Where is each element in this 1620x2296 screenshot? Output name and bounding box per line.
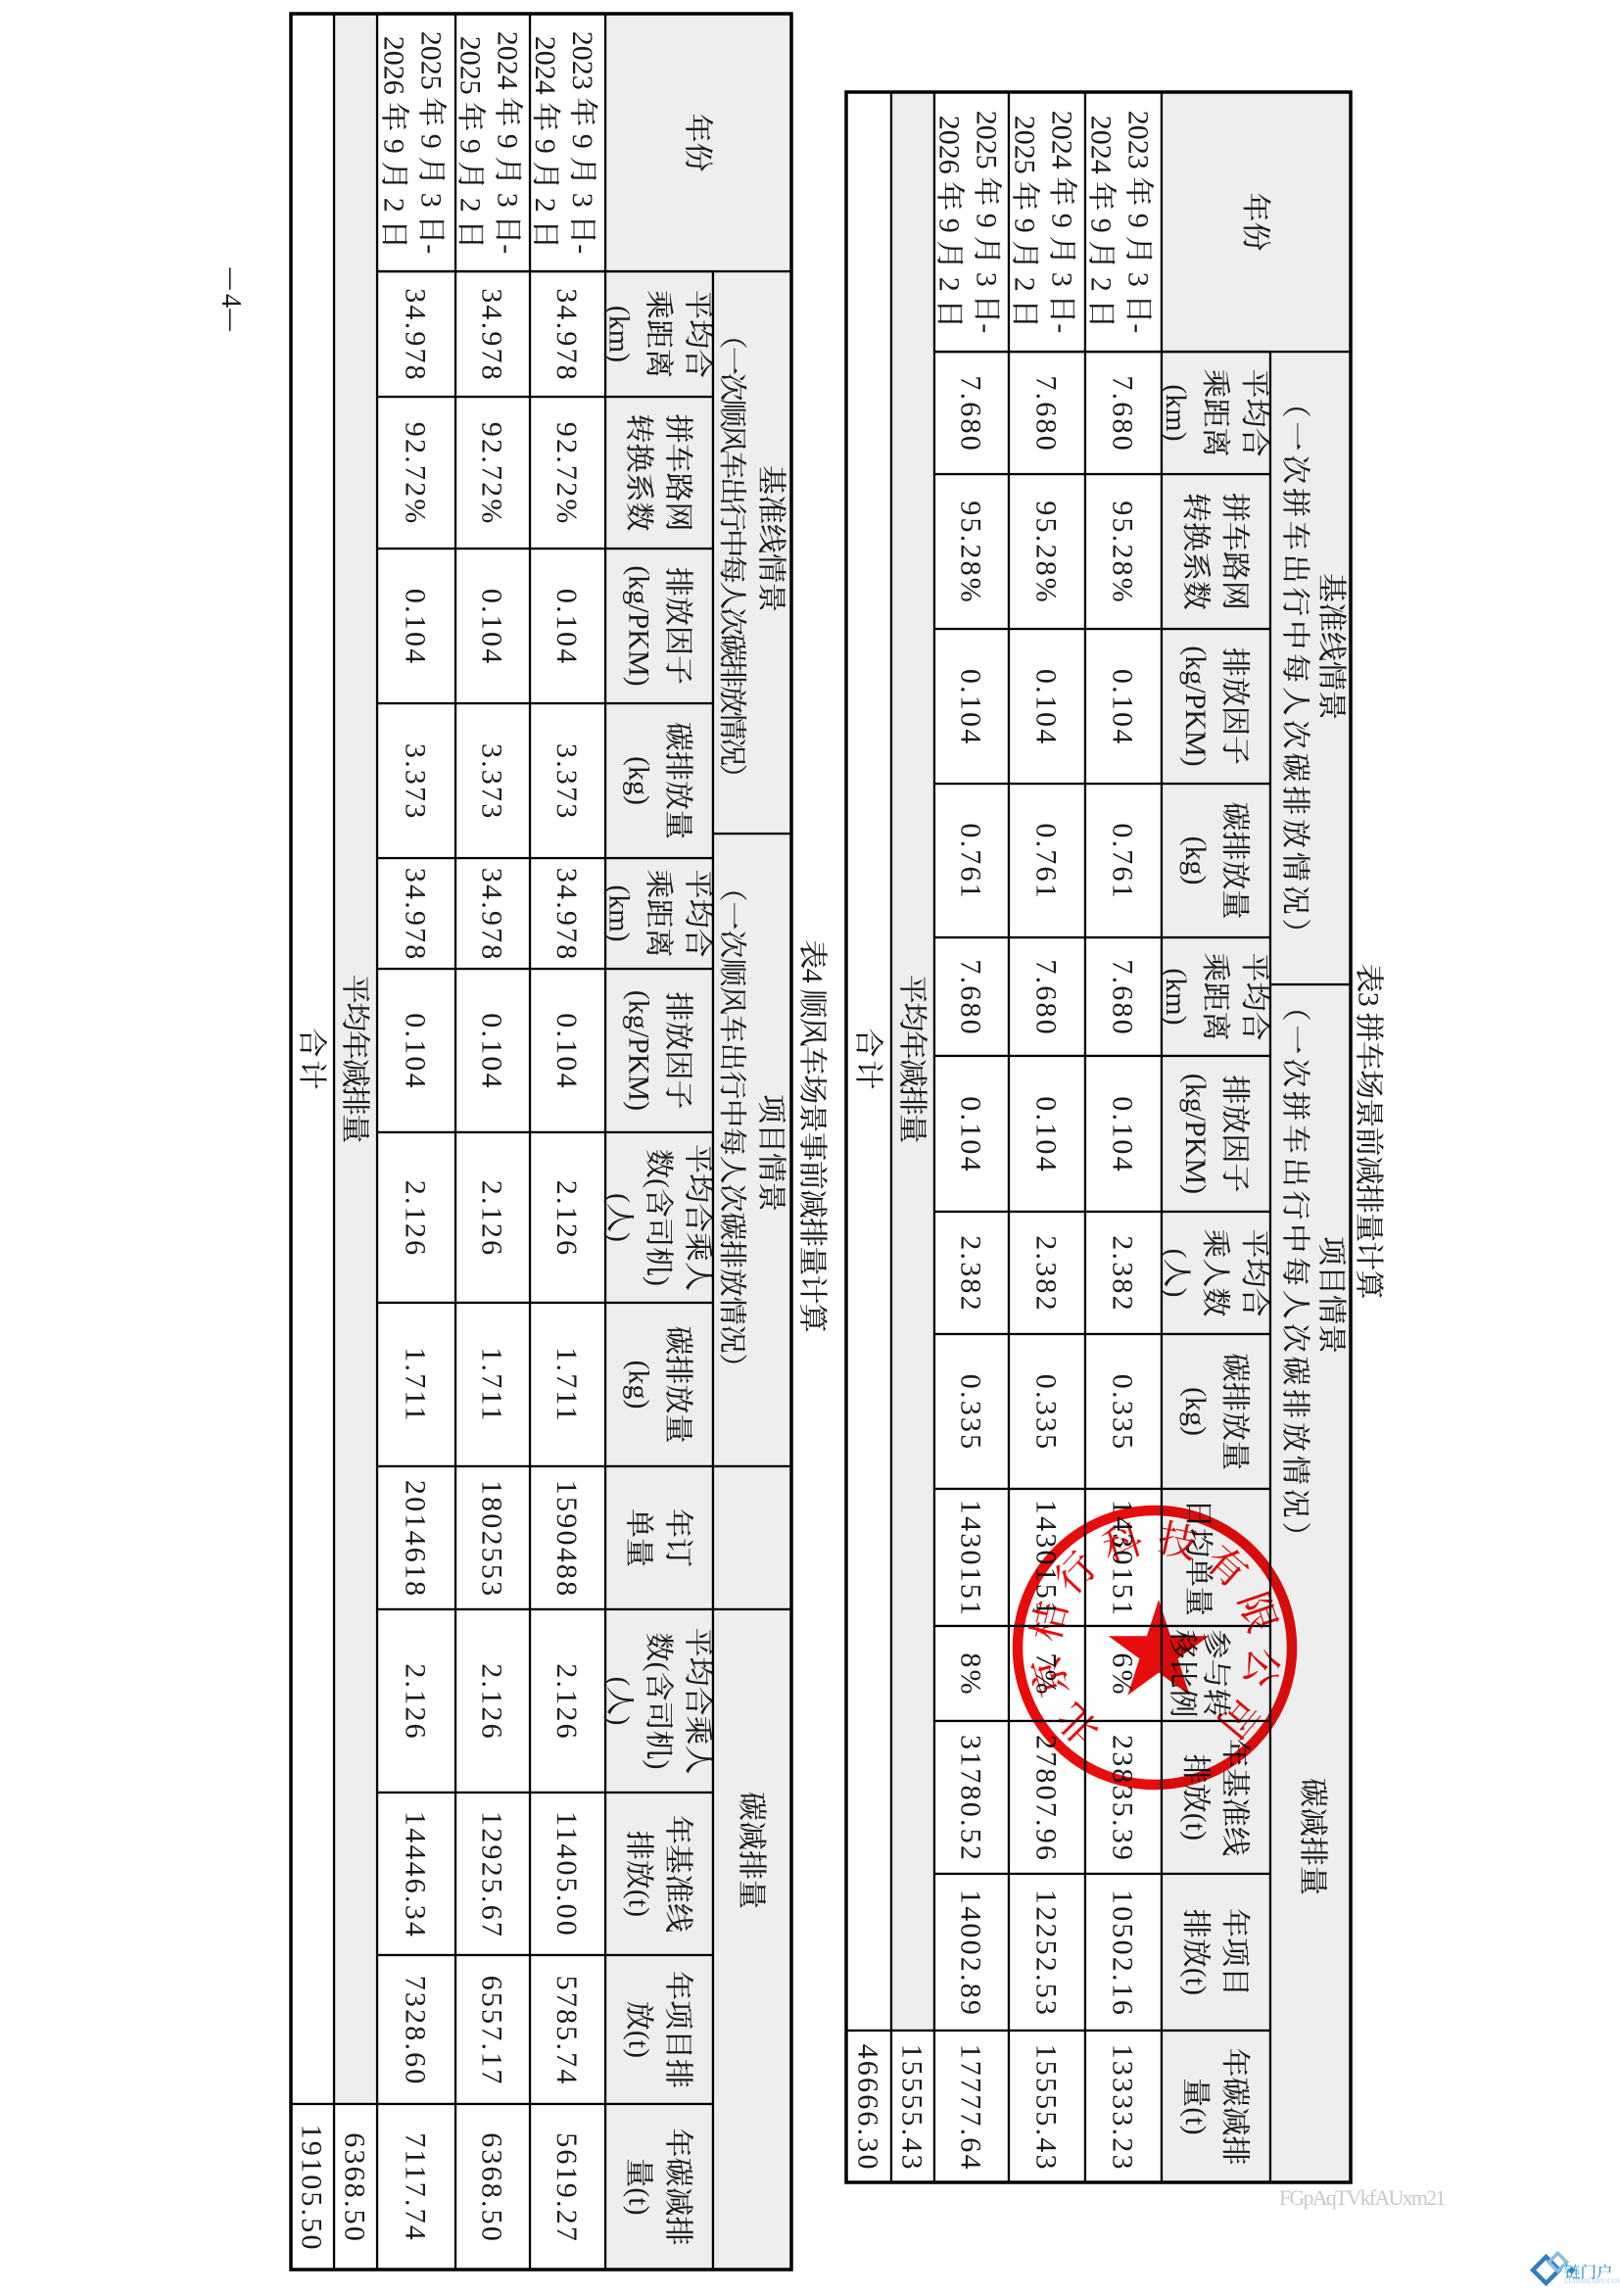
- svg-text:7.680: 7.680: [955, 959, 987, 1036]
- svg-text:9: 9: [492, 134, 524, 149]
- svg-text:34.978: 34.978: [550, 868, 583, 962]
- svg-text:-: -: [971, 323, 1003, 333]
- svg-text:2.382: 2.382: [1107, 1235, 1139, 1313]
- svg-text:46666.30: 46666.30: [852, 2044, 884, 2172]
- svg-text:2025: 2025: [971, 111, 1003, 169]
- svg-text:9: 9: [1046, 214, 1078, 228]
- svg-text:15555.43: 15555.43: [1030, 2044, 1063, 2172]
- svg-text:3: 3: [1353, 992, 1385, 1006]
- svg-text:3.373: 3.373: [400, 743, 432, 821]
- svg-text:2: 2: [1085, 277, 1118, 292]
- svg-text:LIANMENHU.COM: LIANMENHU.COM: [1564, 2277, 1620, 2285]
- svg-text:34.978: 34.978: [476, 288, 508, 382]
- svg-text:95.28%: 95.28%: [955, 501, 987, 604]
- svg-text:-: -: [415, 244, 448, 254]
- svg-text:(km): (km): [603, 306, 636, 362]
- svg-text:34.978: 34.978: [400, 288, 432, 382]
- svg-text:2025: 2025: [1009, 116, 1041, 174]
- svg-text:0.104: 0.104: [1107, 1096, 1139, 1173]
- svg-text:3.373: 3.373: [476, 743, 508, 821]
- svg-text:27807.96: 27807.96: [1030, 1735, 1063, 1862]
- svg-text:2023: 2023: [566, 31, 598, 90]
- svg-text:2.382: 2.382: [1030, 1235, 1063, 1313]
- svg-text:9: 9: [1085, 218, 1118, 233]
- svg-text:0.335: 0.335: [1107, 1374, 1139, 1452]
- svg-text:(: (: [603, 1193, 636, 1203]
- svg-text:14002.89: 14002.89: [955, 1889, 987, 2017]
- svg-text:2024: 2024: [1085, 116, 1118, 174]
- svg-text:(t): (t): [623, 2187, 655, 2215]
- svg-text:13333.23: 13333.23: [1107, 2044, 1139, 2172]
- svg-text:(t): (t): [623, 1889, 655, 1917]
- svg-text:19105.50: 19105.50: [296, 2125, 328, 2252]
- svg-text:): ): [603, 1716, 636, 1726]
- svg-text:(kg/PKM): (kg/PKM): [623, 565, 655, 686]
- svg-text:92.72%: 92.72%: [400, 422, 432, 526]
- svg-text:(t): (t): [1179, 1813, 1212, 1841]
- svg-text:(kg/PKM): (kg/PKM): [623, 990, 655, 1111]
- svg-text:-: -: [492, 244, 524, 254]
- svg-text:0.761: 0.761: [955, 823, 987, 900]
- svg-text:0.104: 0.104: [550, 589, 583, 666]
- svg-text:3: 3: [415, 193, 448, 208]
- svg-text:0.761: 0.761: [1107, 823, 1139, 900]
- svg-text:2025: 2025: [454, 36, 487, 95]
- svg-text:7.680: 7.680: [1107, 959, 1139, 1036]
- svg-text:2014618: 2014618: [400, 1480, 432, 1598]
- svg-text:0.104: 0.104: [550, 1013, 583, 1090]
- svg-text:8%: 8%: [955, 1652, 987, 1696]
- svg-text:0.104: 0.104: [400, 1013, 432, 1090]
- svg-text:-: -: [1046, 323, 1078, 333]
- svg-text:12252.53: 12252.53: [1030, 1889, 1063, 2017]
- svg-text:1430151: 1430151: [955, 1500, 987, 1617]
- svg-text:7.680: 7.680: [1030, 959, 1063, 1036]
- svg-text:4: 4: [796, 969, 829, 983]
- svg-text:-: -: [566, 244, 598, 254]
- svg-text:7328.60: 7328.60: [400, 1976, 432, 2086]
- svg-text:3: 3: [1046, 272, 1078, 287]
- svg-text:2: 2: [529, 198, 561, 213]
- svg-text:2: 2: [1009, 277, 1041, 292]
- svg-text:9: 9: [1122, 214, 1155, 228]
- svg-text:1.711: 1.711: [550, 1347, 583, 1422]
- svg-text:2023: 2023: [1122, 111, 1155, 169]
- svg-text:3: 3: [971, 272, 1003, 287]
- svg-text:0.335: 0.335: [955, 1374, 987, 1452]
- svg-text:1.711: 1.711: [400, 1347, 432, 1422]
- svg-text:(t): (t): [1179, 1968, 1212, 1995]
- svg-text:23835.39: 23835.39: [1107, 1735, 1139, 1862]
- svg-text:9: 9: [1009, 218, 1041, 233]
- svg-text:(km): (km): [1160, 968, 1192, 1025]
- svg-text:-: -: [1122, 323, 1155, 333]
- svg-text:(kg): (kg): [1179, 1387, 1212, 1436]
- svg-text:7.680: 7.680: [1107, 375, 1139, 453]
- svg-text:2.126: 2.126: [476, 1663, 508, 1741]
- svg-text:(t): (t): [623, 2031, 655, 2058]
- svg-text:(: (: [643, 1662, 675, 1672]
- svg-text:): ): [1160, 1288, 1192, 1298]
- svg-text:9: 9: [415, 134, 448, 149]
- svg-text:(km): (km): [603, 885, 636, 941]
- svg-text:0.335: 0.335: [1030, 1374, 1063, 1452]
- svg-text:2024: 2024: [492, 31, 524, 90]
- svg-text:2.126: 2.126: [550, 1663, 583, 1741]
- svg-text:2.126: 2.126: [476, 1180, 508, 1258]
- svg-text:2026: 2026: [378, 36, 410, 95]
- svg-text:2.382: 2.382: [955, 1235, 987, 1313]
- svg-text:2: 2: [454, 198, 487, 213]
- svg-text:): ): [643, 1760, 675, 1770]
- svg-text:9: 9: [566, 134, 598, 149]
- svg-text:0.104: 0.104: [955, 1096, 987, 1173]
- svg-text:0.104: 0.104: [476, 589, 508, 666]
- svg-text:11405.00: 11405.00: [550, 1811, 583, 1937]
- svg-text:5785.74: 5785.74: [550, 1976, 583, 2086]
- svg-text:(: (: [643, 1178, 675, 1188]
- svg-text:): ): [643, 1276, 675, 1286]
- svg-text:1.711: 1.711: [476, 1347, 508, 1422]
- svg-text:2: 2: [933, 277, 966, 292]
- svg-text:2024: 2024: [529, 36, 561, 95]
- svg-text:9: 9: [933, 218, 966, 233]
- svg-text:1802553: 1802553: [476, 1480, 508, 1598]
- svg-text:(: (: [1160, 1249, 1192, 1259]
- svg-text:7117.74: 7117.74: [400, 2132, 432, 2242]
- svg-text:(kg): (kg): [623, 1361, 655, 1410]
- svg-text:(: (: [603, 1677, 636, 1687]
- svg-text:9: 9: [529, 139, 561, 154]
- svg-text:15555.43: 15555.43: [896, 2044, 929, 2172]
- svg-text:95.28%: 95.28%: [1030, 501, 1063, 604]
- svg-text:0.104: 0.104: [1030, 669, 1063, 746]
- svg-text:2.126: 2.126: [400, 1663, 432, 1741]
- svg-text:3.373: 3.373: [550, 743, 583, 821]
- svg-text:2: 2: [378, 198, 410, 213]
- svg-text:6368.50: 6368.50: [339, 2132, 371, 2243]
- svg-text:12925.67: 12925.67: [476, 1811, 508, 1938]
- svg-text:92.72%: 92.72%: [550, 422, 583, 526]
- svg-text:(t): (t): [1179, 2107, 1212, 2134]
- svg-text:1590488: 1590488: [550, 1480, 583, 1598]
- svg-text:34.978: 34.978: [400, 868, 432, 962]
- svg-text:4: 4: [215, 294, 246, 308]
- svg-text:3: 3: [566, 193, 598, 208]
- svg-text:0.104: 0.104: [400, 589, 432, 666]
- svg-text:10502.16: 10502.16: [1107, 1889, 1139, 2017]
- svg-text:(kg/PKM): (kg/PKM): [1179, 646, 1212, 766]
- svg-text:2.126: 2.126: [400, 1180, 432, 1258]
- svg-text:0.761: 0.761: [1030, 823, 1063, 900]
- svg-text:0.104: 0.104: [1107, 669, 1139, 746]
- svg-text:): ): [603, 1232, 636, 1242]
- svg-text:(km): (km): [1160, 384, 1192, 441]
- svg-text:7.680: 7.680: [1030, 375, 1063, 453]
- svg-text:17777.64: 17777.64: [955, 2044, 987, 2172]
- svg-text:0.104: 0.104: [955, 669, 987, 746]
- svg-text:(kg): (kg): [623, 756, 655, 805]
- svg-text:FGpAqTVkfAUxm21: FGpAqTVkfAUxm21: [1279, 2185, 1445, 2210]
- svg-text:0.104: 0.104: [476, 1013, 508, 1090]
- svg-text:31780.52: 31780.52: [955, 1735, 987, 1862]
- svg-text:(kg/PKM): (kg/PKM): [1179, 1074, 1212, 1194]
- svg-text:14446.34: 14446.34: [400, 1811, 432, 1938]
- svg-text:2.126: 2.126: [550, 1180, 583, 1258]
- svg-text:3: 3: [1122, 272, 1155, 287]
- svg-text:3: 3: [492, 193, 524, 208]
- svg-text:2025: 2025: [415, 31, 448, 90]
- svg-text:2024: 2024: [1046, 111, 1078, 169]
- svg-text:0.104: 0.104: [1030, 1096, 1063, 1173]
- svg-text:6368.50: 6368.50: [476, 2132, 508, 2243]
- svg-text:95.28%: 95.28%: [1107, 501, 1139, 604]
- svg-text:34.978: 34.978: [476, 868, 508, 962]
- svg-text:34.978: 34.978: [550, 288, 583, 382]
- svg-text:(kg): (kg): [1179, 837, 1212, 885]
- svg-text:7.680: 7.680: [955, 375, 987, 453]
- svg-text:9: 9: [378, 139, 410, 154]
- svg-text:6557.17: 6557.17: [476, 1976, 508, 2086]
- svg-text:92.72%: 92.72%: [476, 422, 508, 526]
- svg-text:9: 9: [454, 139, 487, 154]
- svg-text:5619.27: 5619.27: [550, 2132, 583, 2243]
- svg-text:2026: 2026: [933, 116, 966, 174]
- svg-text:9: 9: [971, 214, 1003, 228]
